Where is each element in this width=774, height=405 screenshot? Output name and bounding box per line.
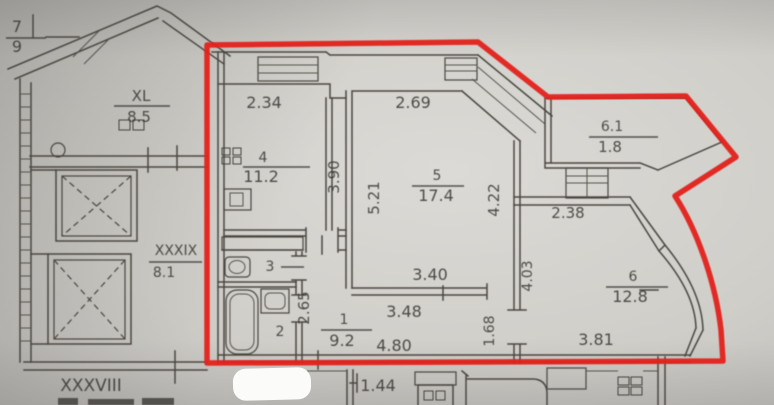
room-number-balcony-6-1: 6.1 [601,119,623,135]
dimension-3.90: 3.90 [325,160,343,193]
toilet-icon [225,257,250,277]
dimension-3.48: 3.48 [386,302,422,321]
dimension-2.38: 2.38 [551,204,584,222]
window-room4-icon [258,57,318,81]
room-number-xl: XL [132,87,151,105]
room-number-room-4: 4 [259,150,268,166]
unit-walls [212,52,722,369]
erased-white-patch [233,367,312,401]
room-area-room-6: 12.8 [612,287,648,306]
diagonal-window-icon [73,31,110,64]
room-area-xl: 8.5 [127,108,151,126]
window-room5-icon [445,58,477,80]
dimension-4.03: 4.03 [520,260,536,291]
dimension-2.34: 2.34 [246,93,282,112]
room-number-room-2: 2 [276,324,285,340]
room-number-room-1: 1 [340,312,349,328]
dimension-4.80: 4.80 [376,336,412,355]
room-number-room-6: 6 [629,269,638,285]
dimension-3.40: 3.40 [412,265,448,284]
room-area-xxxix: 8.1 [153,265,175,281]
room-number-xxxix: XXXIX [155,243,198,259]
appliance-icon [224,189,251,210]
dimension-3.81: 3.81 [578,330,614,349]
room-number-corridor-7: 7 [12,17,22,36]
tiny-dimension-marks [119,120,642,400]
room-area-balcony-6-1: 1.8 [598,138,622,156]
room-area-room-4: 11.2 [243,167,279,186]
floor-plan-svg: 79XL8.5XXXIX8.1XXXVIII411.2517.419.22361… [0,0,774,405]
dimension-5.21: 5.21 [365,181,383,214]
dimension-1.68: 1.68 [482,315,498,346]
elevator-shaft-1 [56,170,137,241]
room-number-xxxviii: XXXVIII [60,376,122,396]
stair-hatch-ticks [20,94,31,341]
dimension-2.69: 2.69 [395,93,431,112]
common-area-walls [8,6,230,405]
room-area-room-5: 17.4 [418,186,454,205]
dimension-1.44: 1.44 [360,376,396,395]
column-circle-icon [51,143,65,157]
unit-outline-red [207,42,736,363]
cut-off-text-fragments [58,398,174,405]
bathtub-icon [226,290,258,354]
room-number-room-3: 3 [266,259,275,275]
dimension-2.65: 2.65 [295,291,313,324]
sink-icon [261,289,289,313]
dimension-4.22: 4.22 [485,183,503,216]
elevator-shaft-2 [48,254,131,344]
room-number-room-5: 5 [433,168,442,184]
room-area-room-1: 9.2 [329,331,354,350]
room-area-corridor-7: 9 [12,37,22,56]
curved-window-room6-icon [640,245,703,356]
floor-plan-photo: 79XL8.5XXXIX8.1XXXVIII411.2517.419.22361… [0,0,774,405]
balcony-door-icon [566,168,608,198]
